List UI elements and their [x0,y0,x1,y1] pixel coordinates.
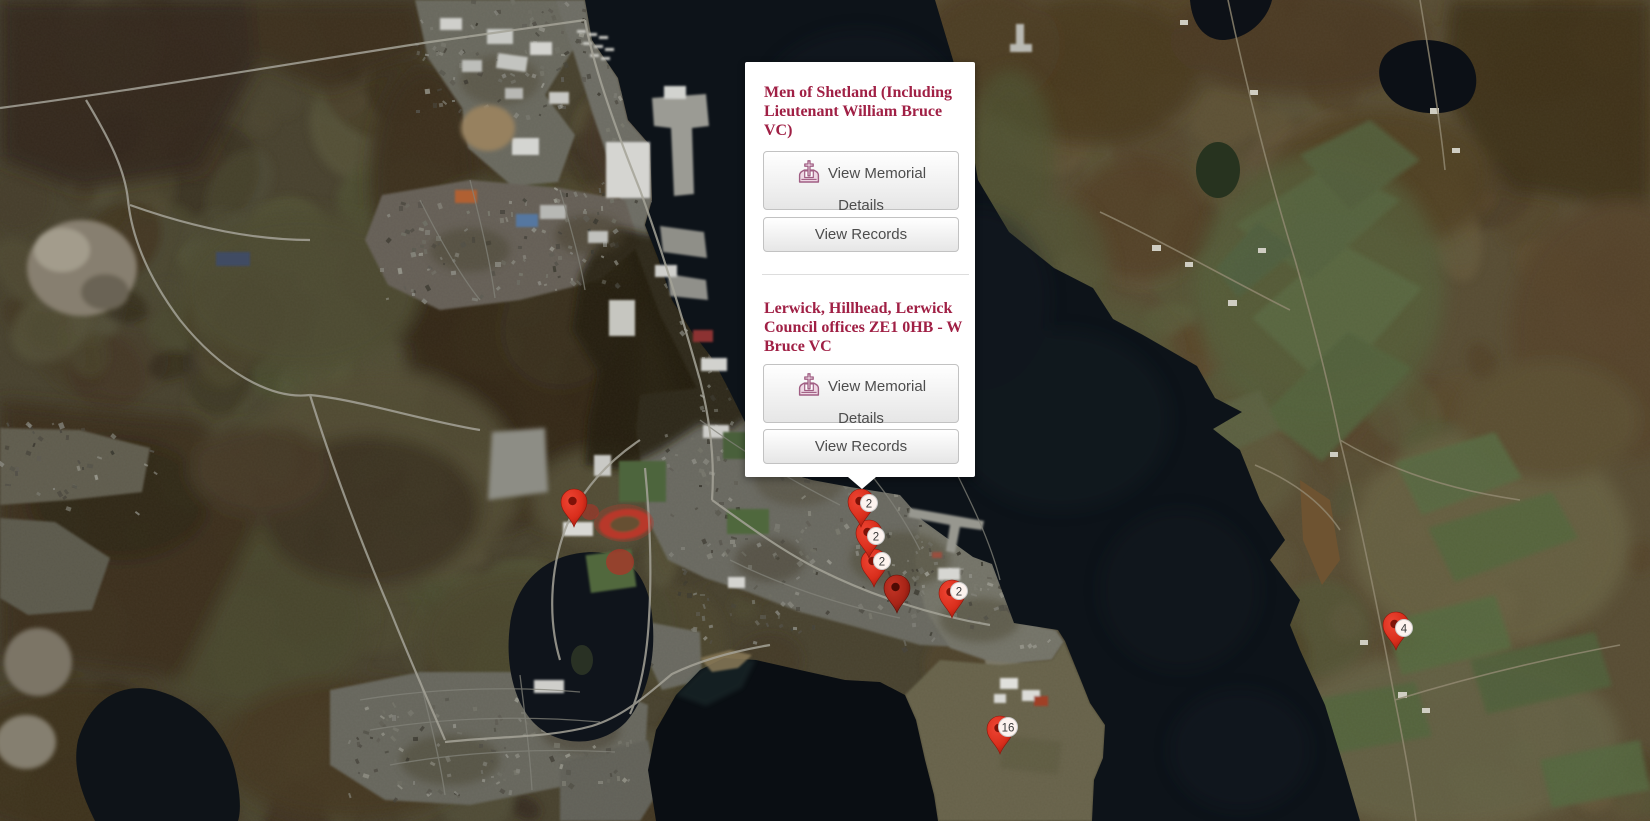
svg-text:16: 16 [1002,723,1015,735]
svg-text:2: 2 [873,532,879,544]
svg-text:2: 2 [956,587,962,599]
svg-text:4: 4 [1401,624,1408,636]
svg-text:2: 2 [866,499,872,511]
svg-text:2: 2 [879,557,885,569]
